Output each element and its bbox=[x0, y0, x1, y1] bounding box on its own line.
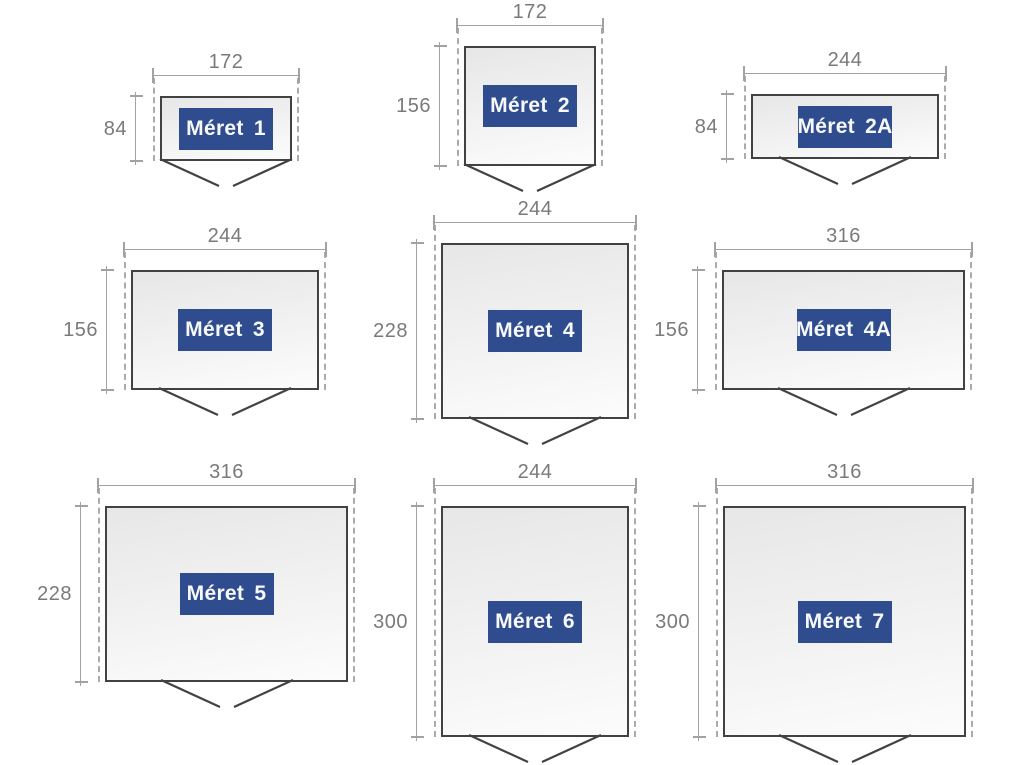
door-swing-icon bbox=[777, 157, 913, 187]
width-dimension-value: 316 bbox=[55, 460, 398, 484]
size-name-badge: Méret 4A bbox=[797, 309, 891, 351]
roof-overhang-right-line bbox=[297, 78, 299, 161]
door-swing-icon bbox=[467, 417, 603, 447]
width-dimension-line bbox=[433, 222, 637, 223]
roof-overhang-left-line bbox=[716, 488, 718, 737]
width-dimension-value: 172 bbox=[414, 0, 646, 24]
roof-overhang-left-line bbox=[434, 488, 436, 737]
width-dimension-line bbox=[97, 485, 356, 486]
size-diagram: 172 84 Méret 1 172 156 Méret 2 244 84 Mé… bbox=[0, 0, 1024, 765]
width-dimension-line bbox=[152, 75, 300, 76]
width-dimension-value: 172 bbox=[110, 50, 342, 74]
roof-overhang-right-line bbox=[353, 488, 355, 682]
height-dimension-value: 156 bbox=[40, 317, 98, 343]
height-dimension-line bbox=[698, 502, 699, 741]
roof-overhang-left-line bbox=[457, 28, 459, 166]
height-dimension-value: 228 bbox=[350, 318, 408, 344]
size-name-badge: Méret 5 bbox=[180, 573, 274, 615]
height-dimension-value: 228 bbox=[14, 581, 72, 607]
door-swing-icon bbox=[776, 388, 912, 418]
height-dimension-value: 156 bbox=[631, 317, 689, 343]
width-dimension-line bbox=[743, 73, 947, 74]
height-dimension-value: 300 bbox=[350, 609, 408, 635]
size-name-badge: Méret 4 bbox=[488, 310, 582, 352]
height-dimension-value: 84 bbox=[660, 114, 718, 140]
size-name-badge: Méret 1 bbox=[179, 108, 273, 150]
height-dimension-line bbox=[439, 42, 440, 170]
door-swing-icon bbox=[467, 735, 603, 765]
door-swing-icon bbox=[158, 159, 294, 189]
size-name-badge: Méret 7 bbox=[798, 601, 892, 643]
roof-overhang-left-line bbox=[153, 78, 155, 161]
roof-overhang-left-line bbox=[434, 225, 436, 419]
width-dimension-line bbox=[456, 25, 604, 26]
size-name-badge: Méret 2A bbox=[798, 106, 892, 148]
height-dimension-line bbox=[416, 239, 417, 423]
height-dimension-line bbox=[416, 502, 417, 741]
roof-overhang-left-line bbox=[715, 252, 717, 390]
roof-overhang-right-line bbox=[970, 252, 972, 390]
height-dimension-line bbox=[135, 92, 136, 165]
width-dimension-line bbox=[715, 485, 974, 486]
height-dimension-value: 84 bbox=[69, 116, 127, 142]
size-name-badge: Méret 3 bbox=[178, 309, 272, 351]
height-dimension-value: 300 bbox=[632, 609, 690, 635]
width-dimension-line bbox=[123, 249, 327, 250]
roof-overhang-right-line bbox=[324, 252, 326, 390]
height-dimension-line bbox=[726, 90, 727, 163]
size-name-badge: Méret 2 bbox=[483, 85, 577, 127]
roof-overhang-left-line bbox=[124, 252, 126, 390]
height-dimension-line bbox=[80, 502, 81, 686]
door-swing-icon bbox=[157, 388, 293, 418]
width-dimension-value: 316 bbox=[673, 460, 1016, 484]
door-swing-icon bbox=[777, 735, 913, 765]
width-dimension-value: 244 bbox=[391, 197, 679, 221]
width-dimension-value: 244 bbox=[391, 460, 679, 484]
roof-overhang-right-line bbox=[971, 488, 973, 737]
width-dimension-line bbox=[714, 249, 973, 250]
roof-overhang-right-line bbox=[944, 76, 946, 159]
width-dimension-value: 244 bbox=[701, 48, 989, 72]
roof-overhang-left-line bbox=[98, 488, 100, 682]
width-dimension-value: 244 bbox=[81, 224, 369, 248]
width-dimension-value: 316 bbox=[672, 224, 1015, 248]
height-dimension-line bbox=[106, 266, 107, 394]
door-swing-icon bbox=[462, 164, 598, 194]
height-dimension-value: 156 bbox=[373, 93, 431, 119]
roof-overhang-left-line bbox=[744, 76, 746, 159]
size-name-badge: Méret 6 bbox=[488, 601, 582, 643]
width-dimension-line bbox=[433, 485, 637, 486]
roof-overhang-right-line bbox=[601, 28, 603, 166]
height-dimension-line bbox=[697, 266, 698, 394]
door-swing-icon bbox=[159, 680, 295, 710]
